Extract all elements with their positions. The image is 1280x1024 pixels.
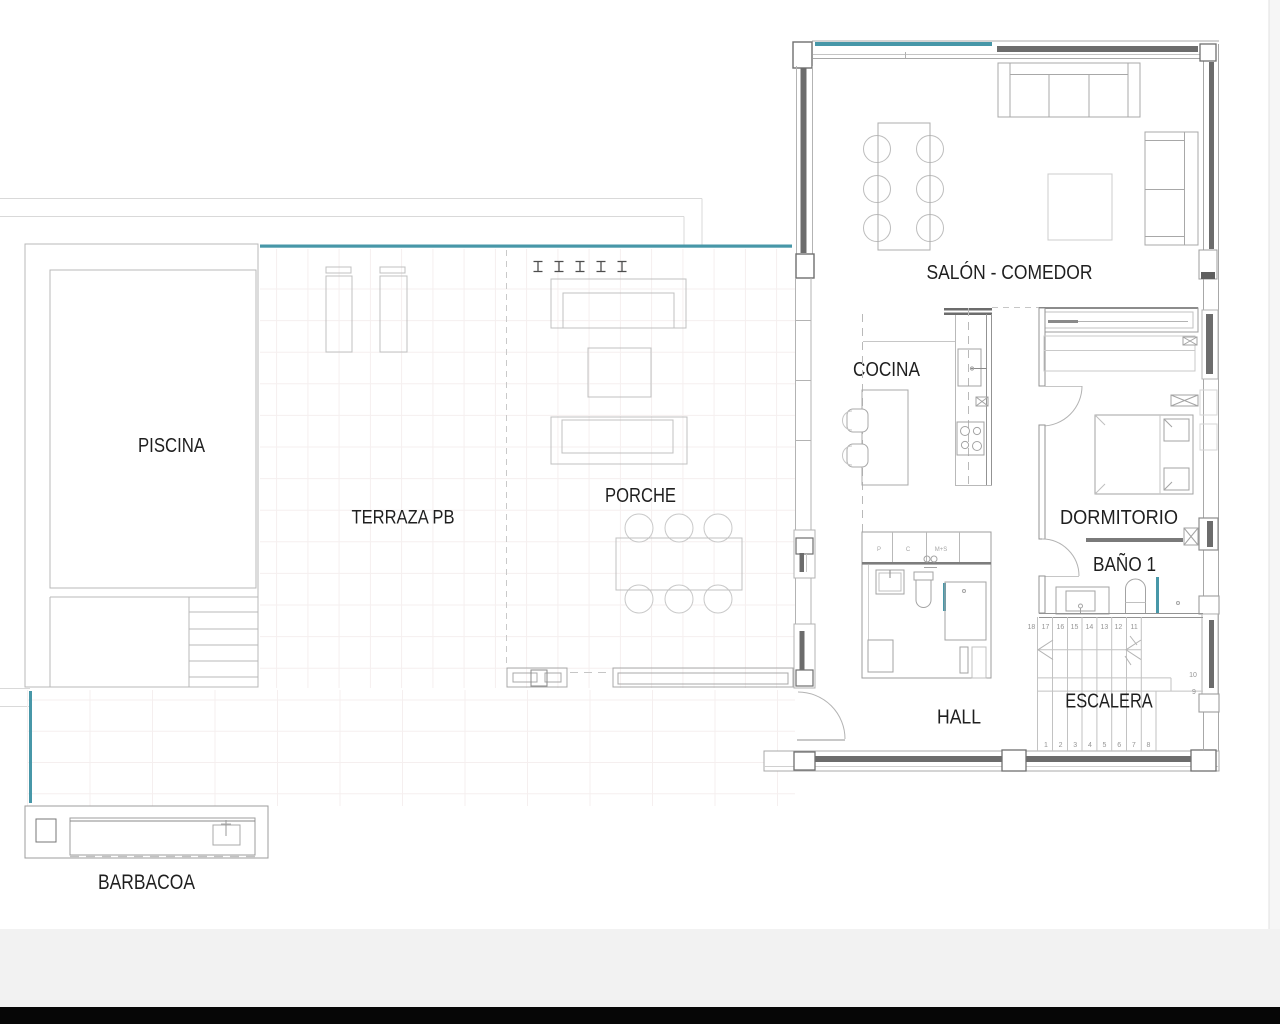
svg-text:DORMITORIO: DORMITORIO xyxy=(1060,507,1178,529)
svg-text:13: 13 xyxy=(1101,624,1109,631)
svg-text:TERRAZA PB: TERRAZA PB xyxy=(352,508,455,529)
svg-text:BAÑO 1: BAÑO 1 xyxy=(1093,552,1156,576)
svg-text:PISCINA: PISCINA xyxy=(138,435,206,457)
svg-text:PORCHE: PORCHE xyxy=(605,485,676,507)
svg-text:17: 17 xyxy=(1042,624,1050,631)
svg-text:3: 3 xyxy=(1073,742,1077,749)
svg-text:18: 18 xyxy=(1028,624,1036,631)
svg-text:ESCALERA: ESCALERA xyxy=(1065,691,1153,713)
svg-text:6: 6 xyxy=(1117,742,1121,749)
svg-text:COCINA: COCINA xyxy=(853,359,921,381)
svg-text:2: 2 xyxy=(1059,742,1063,749)
svg-text:10: 10 xyxy=(1189,672,1197,679)
svg-text:1: 1 xyxy=(1044,742,1048,749)
svg-text:BARBACOA: BARBACOA xyxy=(98,871,195,894)
svg-text:16: 16 xyxy=(1057,624,1065,631)
svg-text:7: 7 xyxy=(1132,742,1136,749)
svg-text:15: 15 xyxy=(1071,624,1079,631)
svg-text:HALL: HALL xyxy=(937,707,981,729)
svg-text:11: 11 xyxy=(1131,624,1138,631)
svg-text:4: 4 xyxy=(1088,742,1092,749)
svg-text:9: 9 xyxy=(1192,689,1196,696)
svg-text:5: 5 xyxy=(1103,742,1107,749)
svg-text:12: 12 xyxy=(1115,624,1123,631)
svg-text:SALÓN - COMEDOR: SALÓN - COMEDOR xyxy=(927,261,1093,284)
svg-text:8: 8 xyxy=(1147,742,1151,749)
svg-text:C: C xyxy=(906,547,911,553)
svg-text:14: 14 xyxy=(1086,624,1094,631)
svg-text:P: P xyxy=(877,547,881,553)
svg-text:M+S: M+S xyxy=(935,547,948,553)
